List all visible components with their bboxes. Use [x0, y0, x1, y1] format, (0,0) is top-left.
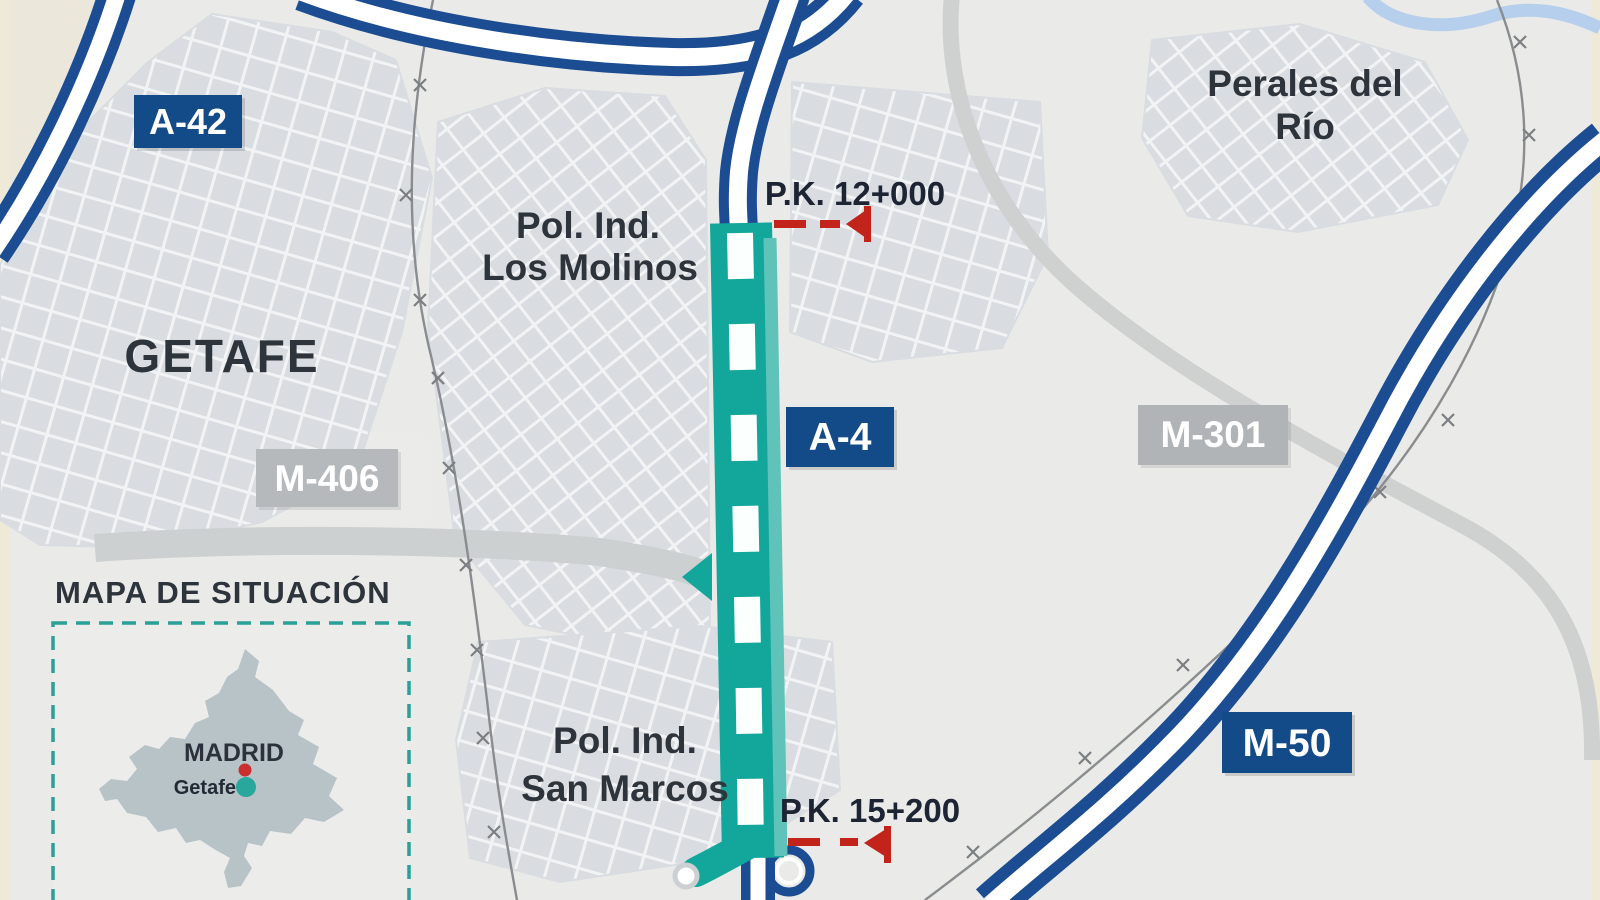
label-getafe: GETAFE [124, 330, 319, 382]
badge-a42: A-42 [134, 95, 245, 151]
badge-a4-label: A-4 [809, 416, 872, 459]
inset-region-label: MADRID [184, 739, 284, 767]
badge-a42-label: A-42 [149, 101, 227, 142]
map-canvas: P.K. 12+000 P.K. 15+200 A-42 M-406 [0, 0, 1600, 900]
badge-m301: M-301 [1138, 405, 1291, 468]
badge-m406: M-406 [256, 449, 401, 510]
inset-title: MAPA DE SITUACIÓN [55, 574, 391, 610]
label-san-marcos-line1: Pol. Ind. [553, 720, 697, 761]
label-los-molinos-line1: Pol. Ind. [516, 205, 660, 246]
badge-m50-label: M-50 [1243, 722, 1332, 765]
badge-m301-label: M-301 [1161, 414, 1266, 455]
madrid-dot [239, 764, 252, 777]
badge-a4: A-4 [786, 407, 897, 470]
getafe-dot [236, 777, 256, 797]
km-marker-start-label: P.K. 12+000 [765, 175, 945, 212]
label-perales-line2: Río [1275, 106, 1335, 147]
inset-city-label: Getafe [174, 777, 236, 799]
km-marker-end-label: P.K. 15+200 [780, 792, 960, 829]
badge-m406-label: M-406 [275, 458, 380, 499]
label-los-molinos-line2: Los Molinos [482, 247, 698, 288]
badge-m50: M-50 [1222, 712, 1355, 776]
label-san-marcos-line2: San Marcos [521, 768, 729, 809]
branch-end-circle [675, 865, 697, 887]
label-perales-line1: Perales del [1207, 63, 1402, 104]
road-map: P.K. 12+000 P.K. 15+200 A-42 M-406 [0, 0, 1600, 900]
